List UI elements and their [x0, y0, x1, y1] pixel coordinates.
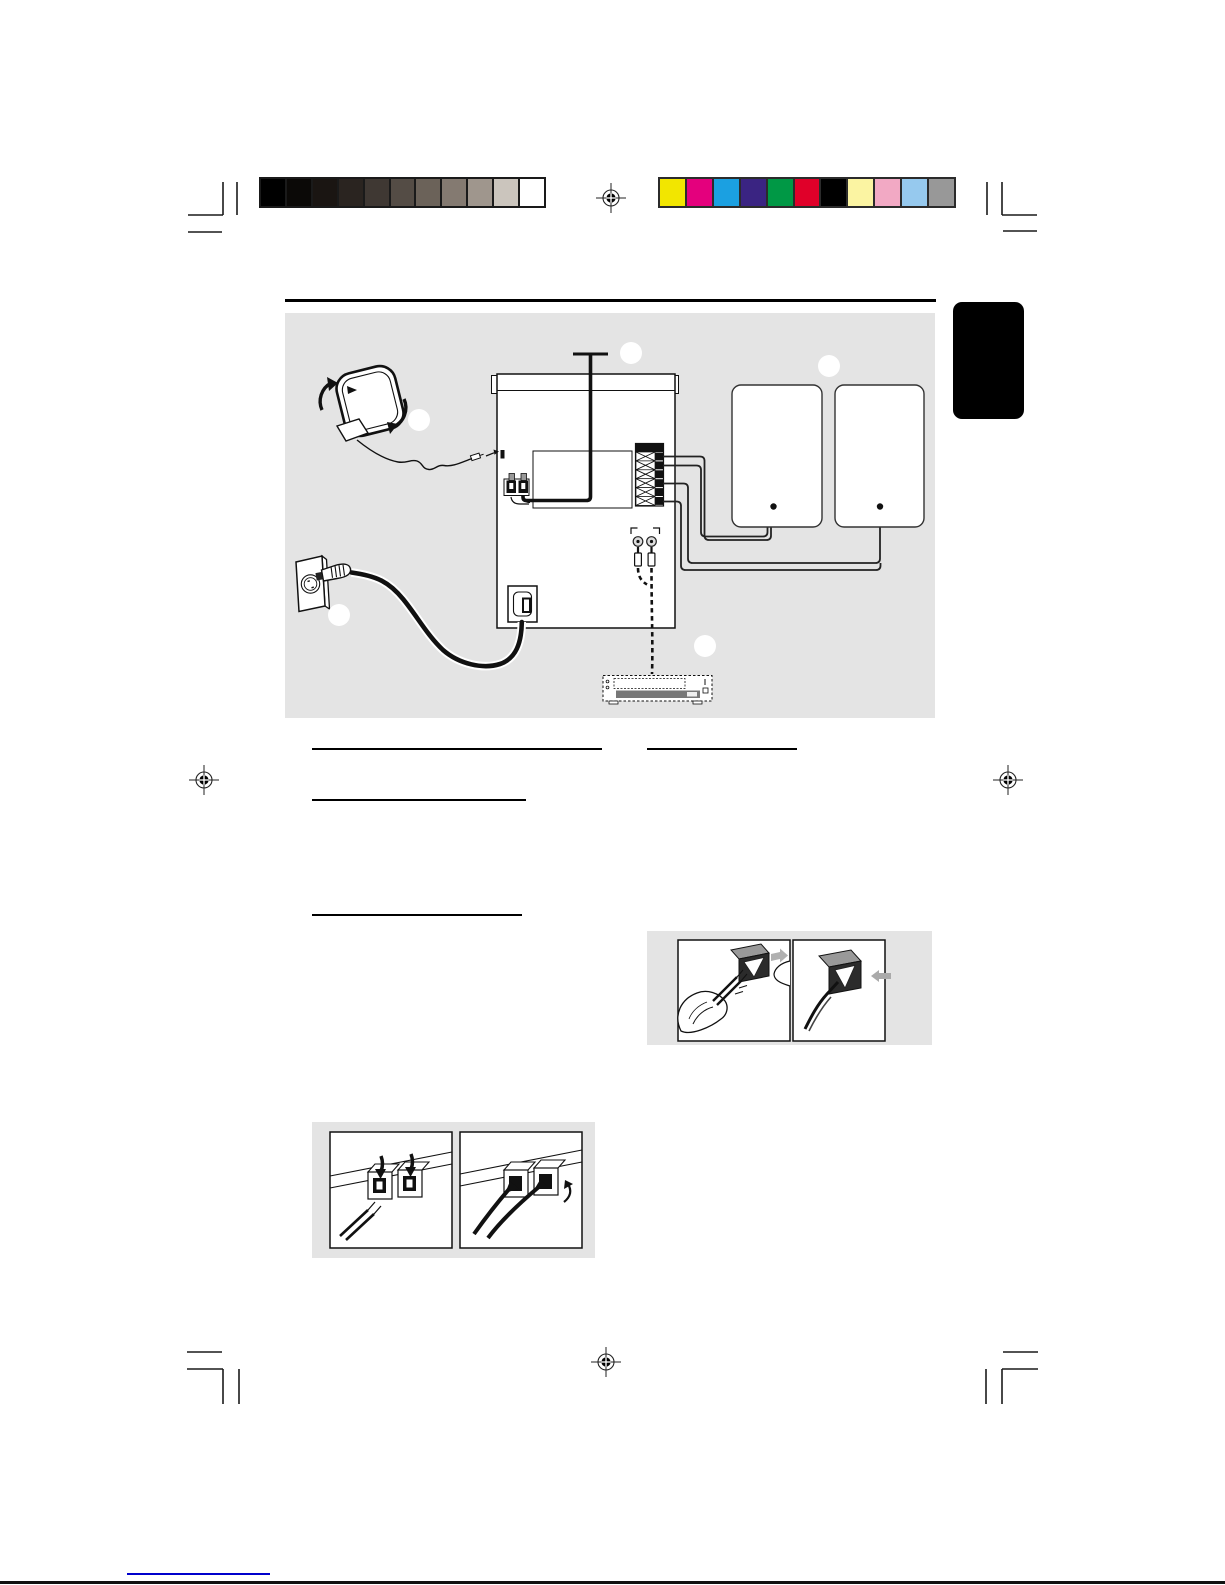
calibration-swatch: [741, 179, 766, 206]
calibration-swatch: [821, 179, 846, 206]
calibration-swatch: [660, 179, 685, 206]
calibration-swatch: [714, 179, 739, 206]
calibration-swatch: [261, 179, 285, 206]
connection-diagram: [285, 313, 935, 718]
callout-circle: [328, 604, 350, 626]
heading-underline-3: [312, 799, 526, 801]
calibration-swatch: [875, 179, 900, 206]
calibration-swatch: [442, 179, 466, 206]
calibration-swatch: [391, 179, 415, 206]
calibration-swatch: [768, 179, 793, 206]
registration-mark-top: [593, 180, 629, 216]
heading-underline-4: [312, 914, 522, 916]
heading-underline-2: [647, 748, 797, 750]
footer-link-underline[interactable]: [127, 1573, 270, 1575]
calibration-swatch: [416, 179, 440, 206]
callout-circle: [408, 409, 430, 431]
left-speaker-wire-dot: [770, 503, 776, 509]
antenna-socket: [501, 450, 505, 459]
wall-outlet: [296, 556, 330, 612]
left-speaker: [732, 385, 822, 527]
registration-mark-bottom: [588, 1344, 624, 1380]
calibration-swatch: [902, 179, 927, 206]
color-calibration-bar: [658, 177, 956, 208]
external-device: [603, 676, 712, 705]
callout-circle: [620, 342, 642, 364]
crop-marks-bottom-left: [180, 1345, 245, 1407]
callout-circle: [694, 635, 716, 657]
calibration-swatch: [287, 179, 311, 206]
callout-circle: [818, 355, 840, 377]
right-speaker-wire-dot: [877, 503, 883, 509]
grayscale-calibration-bar: [259, 177, 546, 208]
speaker-terminal-block: [636, 444, 664, 507]
calibration-swatch: [365, 179, 389, 206]
ac-inlet: [508, 586, 537, 622]
calibration-swatch: [848, 179, 873, 206]
calibration-swatch: [687, 179, 712, 206]
crop-marks-bottom-right: [980, 1345, 1042, 1407]
power-terminal-detail-box: [312, 1122, 595, 1258]
calibration-swatch: [795, 179, 820, 206]
registration-mark-right: [990, 762, 1026, 798]
crop-marks-top-right: [980, 175, 1042, 237]
language-section-tab: [953, 302, 1024, 419]
manual-page: [0, 0, 1225, 1585]
calibration-swatch: [468, 179, 492, 206]
calibration-swatch: [520, 179, 544, 206]
speaker-wire-detail-box: [647, 931, 932, 1045]
registration-mark-left: [186, 762, 222, 798]
calibration-swatch: [313, 179, 337, 206]
chapter-heading-rule: [285, 299, 936, 302]
calibration-swatch: [339, 179, 363, 206]
crop-marks-top-left: [180, 175, 245, 237]
page-bottom-edge: [0, 1581, 1225, 1584]
heading-underline-1: [312, 748, 602, 750]
calibration-swatch: [494, 179, 518, 206]
calibration-swatch: [929, 179, 954, 206]
